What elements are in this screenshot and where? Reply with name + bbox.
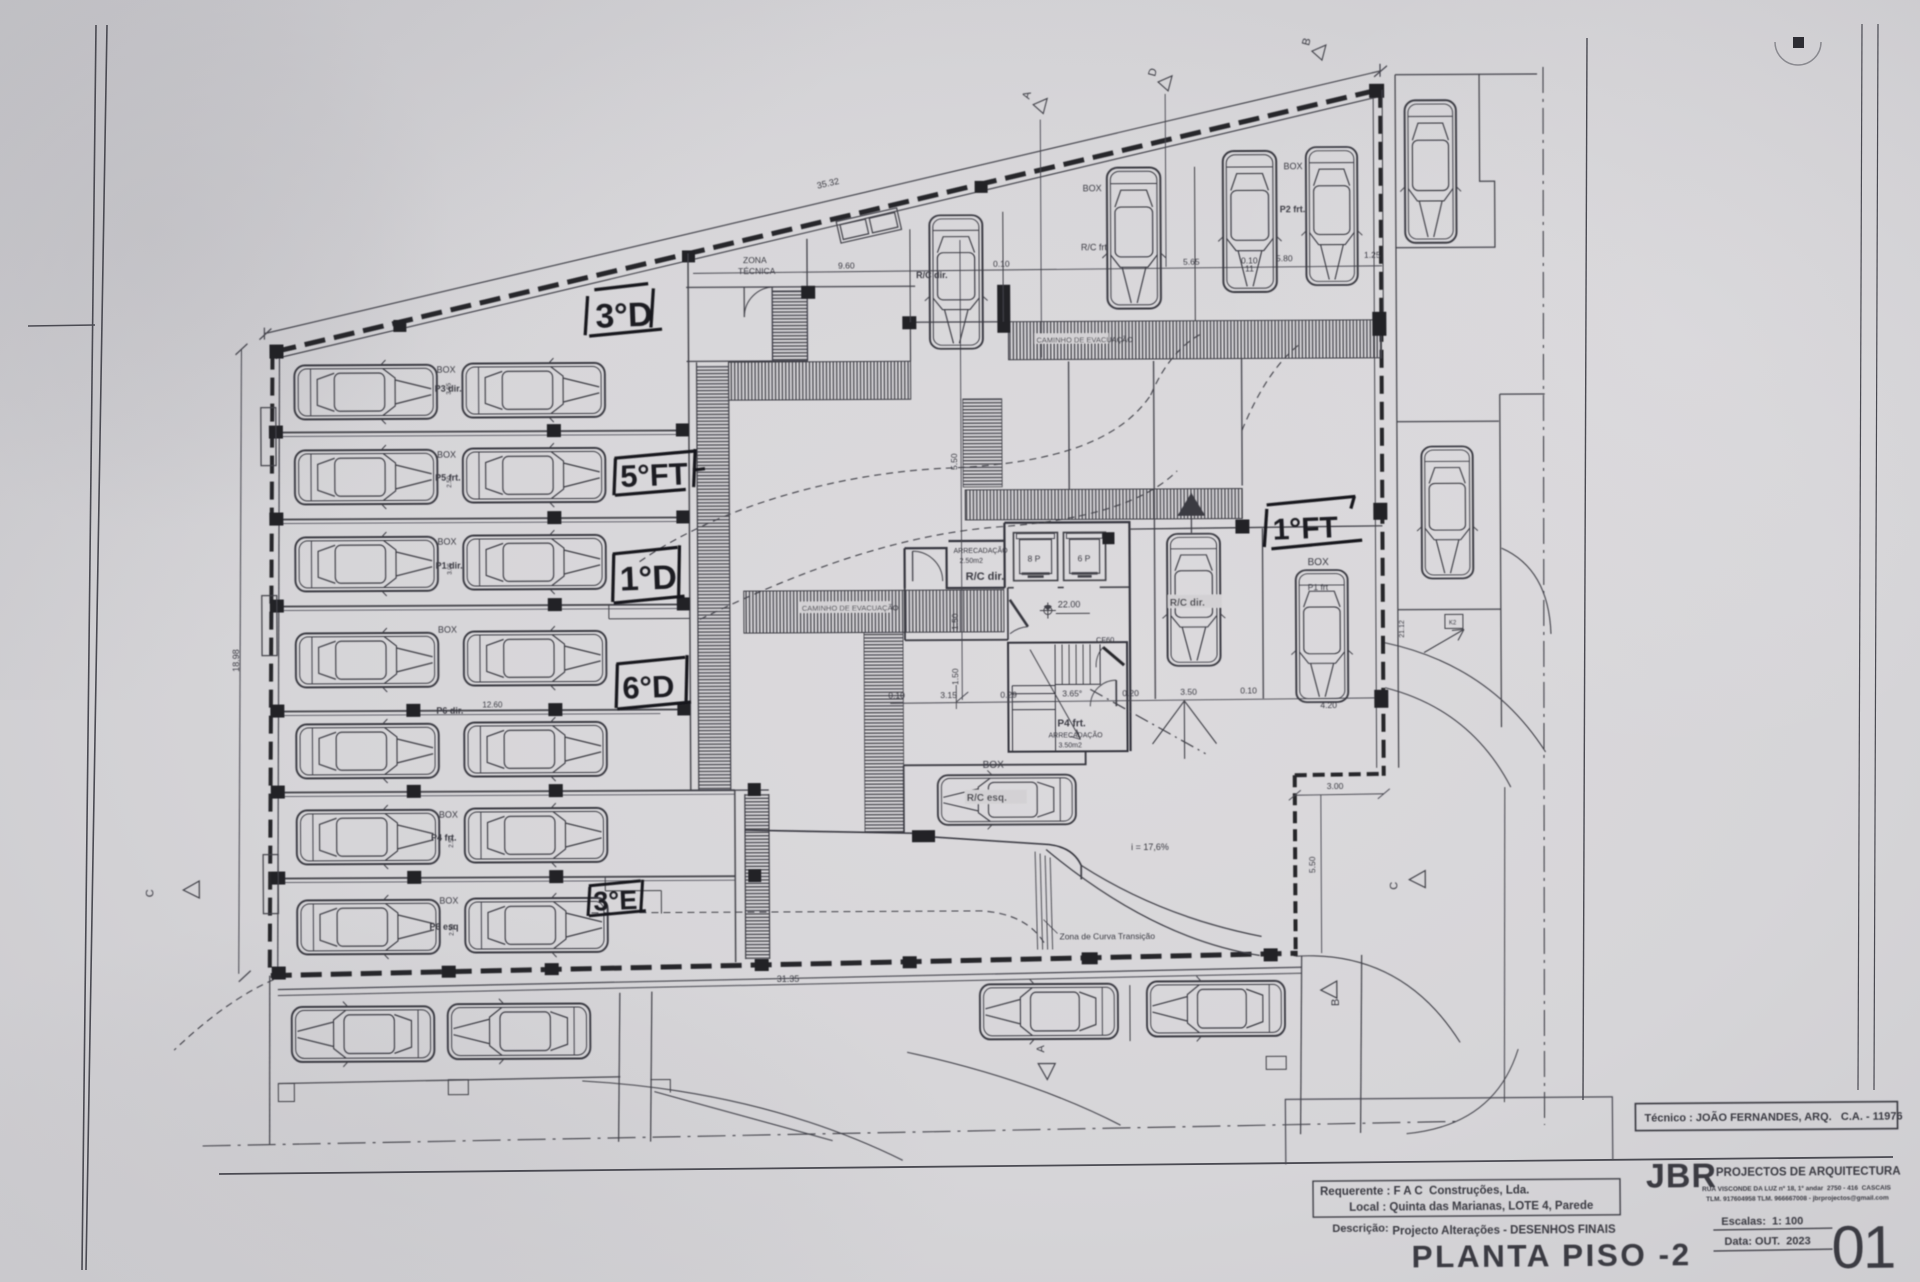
svg-text:BOX: BOX — [437, 365, 456, 375]
svg-text:1°FT: 1°FT — [1272, 511, 1339, 547]
svg-text:RUA VISCONDE DA LUZ nº 18, 1º: RUA VISCONDE DA LUZ nº 18, 1º andar 2750… — [1702, 1185, 1892, 1193]
svg-text:Técnico : JOÃO FERNANDES, ARQ.: Técnico : JOÃO FERNANDES, ARQ. C.A. - 11… — [1644, 1110, 1902, 1125]
svg-text:Descrição:: Descrição: — [1332, 1223, 1388, 1235]
svg-text:1.25: 1.25 — [1364, 250, 1381, 260]
svg-text:BOX: BOX — [983, 760, 1005, 771]
svg-text:3.15: 3.15 — [940, 690, 957, 700]
svg-text:5°FT: 5°FT — [620, 456, 689, 494]
svg-text:CAMINHO DE EVACUAÇÃO: CAMINHO DE EVACUAÇÃO — [802, 603, 899, 613]
svg-text:3.65°: 3.65° — [1062, 688, 1082, 698]
svg-text:2.50: 2.50 — [449, 835, 455, 847]
svg-text:P1 frt: P1 frt — [1308, 582, 1329, 592]
svg-text:BOX: BOX — [439, 810, 458, 820]
svg-text:1.50: 1.50 — [950, 668, 960, 685]
svg-text:0.29: 0.29 — [1000, 690, 1017, 700]
svg-text:6°D: 6°D — [622, 669, 675, 706]
svg-text:3.05: 3.05 — [448, 562, 454, 574]
svg-text:12.60: 12.60 — [482, 700, 503, 709]
svg-text:Requerente : F A C Construçõe: Requerente : F A C Construções, Lda. — [1320, 1184, 1529, 1198]
svg-text:3.50m2: 3.50m2 — [1059, 742, 1082, 749]
svg-text:BOX: BOX — [1308, 557, 1330, 568]
svg-text:C: C — [144, 889, 156, 897]
svg-text:2.50: 2.50 — [449, 923, 455, 935]
svg-text:BOX: BOX — [439, 896, 458, 906]
svg-text:R/C dir.: R/C dir. — [966, 571, 1005, 583]
svg-text:TÉCNICA: TÉCNICA — [738, 266, 776, 276]
svg-text:Escalas: 1: 100: Escalas: 1: 100 — [1721, 1215, 1803, 1228]
svg-text:BOX: BOX — [1083, 183, 1102, 193]
svg-text:P6 dir.: P6 dir. — [436, 706, 463, 716]
svg-text:CAMINHO DE EVACUAÇÃO: CAMINHO DE EVACUAÇÃO — [1036, 335, 1133, 345]
svg-text:3.50: 3.50 — [1180, 687, 1197, 697]
svg-text:11: 11 — [1245, 263, 1254, 273]
svg-text:21.12: 21.12 — [1399, 620, 1406, 638]
svg-text:22.00: 22.00 — [1058, 599, 1081, 609]
svg-text:Zona de Curva Transição: Zona de Curva Transição — [1060, 931, 1156, 942]
svg-text:B: B — [1330, 999, 1342, 1006]
svg-text:8 P: 8 P — [1028, 554, 1041, 564]
svg-text:18.98: 18.98 — [231, 649, 241, 672]
svg-text:i = 17,6%: i = 17,6% — [1131, 842, 1169, 852]
svg-text:0.10: 0.10 — [888, 690, 905, 700]
svg-text:1.50: 1.50 — [950, 613, 960, 630]
svg-text:A: A — [1035, 1045, 1047, 1053]
svg-text:5.65: 5.65 — [1183, 257, 1200, 267]
svg-text:31.35: 31.35 — [777, 974, 800, 984]
svg-text:5.80: 5.80 — [1276, 253, 1293, 263]
svg-text:BOX: BOX — [437, 537, 456, 547]
svg-text:R/C dir.: R/C dir. — [916, 270, 948, 280]
svg-text:0.10: 0.10 — [1240, 685, 1257, 695]
svg-text:R/C frt: R/C frt — [1081, 242, 1108, 252]
svg-text:K2: K2 — [1449, 620, 1457, 626]
svg-text:ARRECADAÇÃO: ARRECADAÇÃO — [1048, 730, 1103, 739]
svg-text:BOX: BOX — [437, 450, 456, 460]
svg-text:0.20: 0.20 — [1122, 688, 1139, 698]
svg-text:P2 frt.: P2 frt. — [1280, 204, 1306, 214]
svg-text:01: 01 — [1831, 1214, 1894, 1281]
svg-text:TLM. 917604958 TLM. 966667008: TLM. 917604958 TLM. 966667008 - jbrproje… — [1706, 1195, 1889, 1203]
svg-text:Local : Quinta das Marianas, L: Local : Quinta das Marianas, LOTE 4, Par… — [1349, 1200, 1593, 1214]
svg-text:3.65: 3.65 — [447, 382, 453, 394]
svg-text:1°D: 1°D — [619, 558, 678, 598]
svg-text:Projecto Alterações - DESENHOS: Projecto Alterações - DESENHOS FINAIS — [1392, 1224, 1616, 1238]
svg-text:0.10: 0.10 — [993, 259, 1010, 269]
svg-text:R/C esq.: R/C esq. — [967, 793, 1007, 804]
svg-text:5.50: 5.50 — [1307, 856, 1317, 873]
svg-text:PLANTA PISO -2: PLANTA PISO -2 — [1411, 1236, 1691, 1274]
svg-text:P4 frt.: P4 frt. — [1057, 718, 1086, 729]
svg-text:CF60: CF60 — [1096, 635, 1114, 644]
svg-text:BOX: BOX — [438, 625, 457, 635]
svg-text:C: C — [1388, 882, 1400, 890]
svg-text:2.50: 2.50 — [447, 475, 453, 487]
svg-text:ZONA: ZONA — [743, 255, 767, 265]
svg-text:Data: OUT. 2023: Data: OUT. 2023 — [1724, 1235, 1810, 1248]
svg-text:9.60: 9.60 — [838, 261, 855, 271]
svg-text:R/C dir.: R/C dir. — [1170, 598, 1205, 609]
svg-text:6 P: 6 P — [1078, 553, 1091, 563]
svg-text:3.00: 3.00 — [1327, 781, 1344, 791]
svg-text:PROJECTOS DE ARQUITECTURA: PROJECTOS DE ARQUITECTURA — [1716, 1166, 1901, 1179]
svg-text:BOX: BOX — [1283, 161, 1302, 171]
svg-text:2.50m2: 2.50m2 — [960, 558, 983, 565]
